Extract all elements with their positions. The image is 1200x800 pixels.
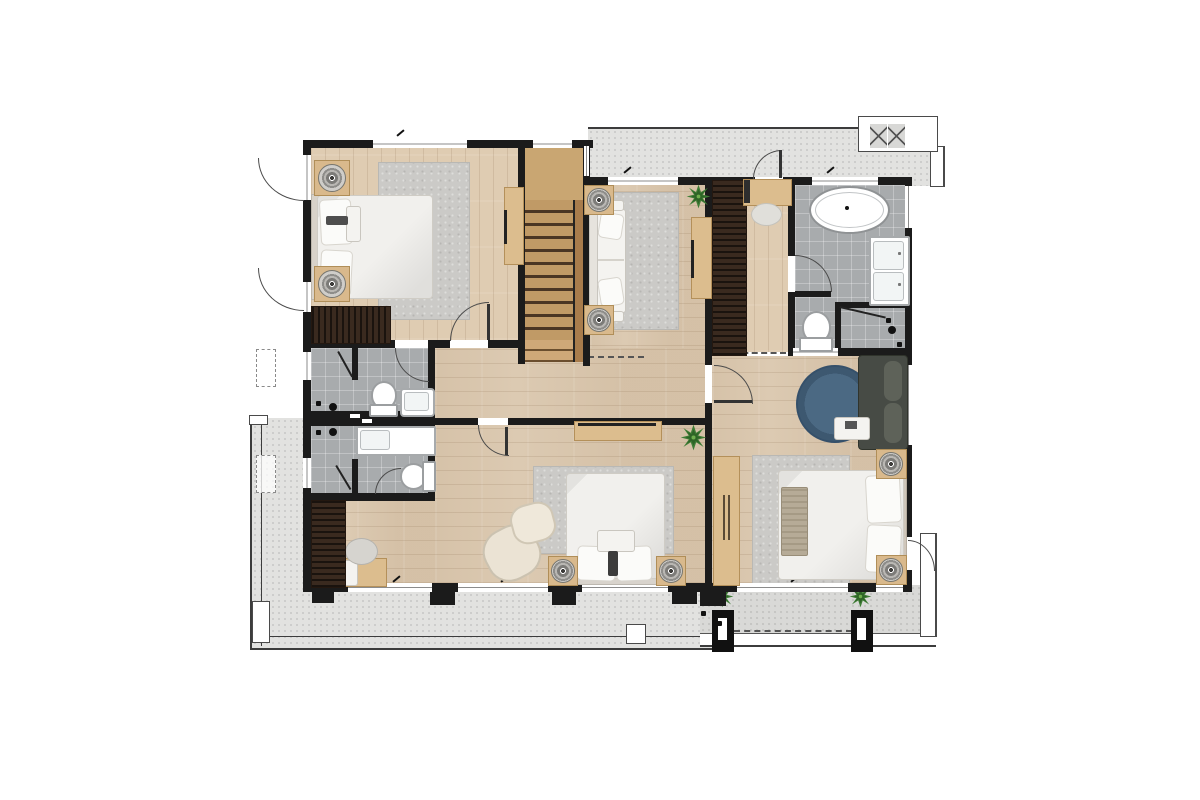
pilaster bbox=[552, 590, 576, 605]
terrace-column-outline-left bbox=[252, 601, 270, 643]
bath-window bbox=[303, 458, 311, 488]
tv-icon bbox=[504, 210, 507, 244]
tv-icon bbox=[578, 423, 656, 426]
shower-drain bbox=[316, 401, 321, 406]
bedroom-lower-door-opening bbox=[478, 418, 508, 425]
bedroom-upper-door-opening bbox=[450, 340, 488, 348]
door-leaf bbox=[505, 427, 508, 455]
tv-icon bbox=[691, 240, 694, 278]
casement-window bbox=[303, 155, 311, 200]
pilaster bbox=[312, 590, 334, 603]
toilet-tank bbox=[422, 461, 436, 492]
closet-wardrobe bbox=[712, 180, 747, 356]
shower-drain bbox=[316, 430, 321, 435]
ac-unit-outline bbox=[256, 349, 276, 387]
shower-wall bbox=[835, 302, 841, 352]
shaft-vent-slot bbox=[362, 419, 372, 423]
casement-swing-arc bbox=[258, 158, 304, 201]
window bbox=[737, 583, 848, 592]
potted-plant-icon bbox=[680, 424, 707, 451]
toilet-tank bbox=[369, 404, 398, 417]
wardrobe bbox=[713, 456, 740, 586]
door-leaf bbox=[714, 400, 752, 403]
door-leaf bbox=[487, 304, 490, 340]
laptop bbox=[608, 551, 618, 576]
table-lamp-icon bbox=[318, 164, 346, 192]
ensuite-upper-door-opening bbox=[395, 340, 428, 348]
lower-balcony-railing bbox=[700, 633, 936, 647]
casement-window bbox=[303, 282, 311, 312]
freestanding-bathtub bbox=[809, 186, 890, 234]
faucet-dot bbox=[898, 252, 901, 255]
terrace-column-outline-bottom bbox=[626, 624, 646, 644]
master-bedroom-door-opening bbox=[705, 365, 712, 403]
balcony-floor-drain bbox=[701, 611, 706, 616]
door-leaf bbox=[779, 150, 782, 178]
bath-window bbox=[303, 352, 311, 380]
stair-direction-dashes bbox=[588, 356, 644, 358]
upper-balcony-right-railing bbox=[930, 146, 945, 187]
stair-landing bbox=[525, 148, 583, 202]
faucet-dot bbox=[898, 283, 901, 286]
shower-head-icon bbox=[329, 403, 337, 411]
shower-partition bbox=[352, 459, 358, 496]
table-lamp-icon bbox=[551, 559, 575, 583]
window bbox=[533, 140, 572, 148]
dark-sofa-cushion bbox=[884, 361, 902, 401]
bed-throw bbox=[326, 216, 348, 225]
wardrobe-handle bbox=[723, 495, 725, 540]
casement-swing-arc bbox=[258, 268, 304, 311]
bed-tray bbox=[597, 530, 635, 552]
balcony-floor-drain bbox=[717, 621, 722, 626]
sofa-pillow bbox=[597, 276, 625, 307]
wall bbox=[430, 418, 712, 425]
shower-head-icon bbox=[888, 326, 896, 334]
coffee-table-books bbox=[845, 421, 857, 429]
shower-partition bbox=[352, 343, 358, 380]
vanity-desk bbox=[743, 179, 792, 206]
shower-head-icon bbox=[329, 428, 337, 436]
potted-plant-icon bbox=[686, 184, 711, 209]
vanity-basin bbox=[873, 241, 904, 270]
dark-sofa-cushion bbox=[884, 403, 902, 443]
wardrobe-handle bbox=[728, 495, 730, 540]
pilaster bbox=[430, 590, 455, 605]
window bbox=[812, 177, 878, 185]
window bbox=[584, 146, 589, 176]
ac-unit-outline bbox=[256, 455, 276, 493]
window-tick bbox=[396, 129, 404, 136]
sink-basin bbox=[360, 430, 390, 450]
wardrobe bbox=[311, 500, 346, 588]
bed-runner bbox=[781, 487, 808, 556]
louver-platform-hatch bbox=[888, 124, 905, 148]
table-lamp-icon bbox=[587, 308, 611, 332]
vanity-mirror bbox=[744, 180, 750, 203]
shaft-vent-slot bbox=[350, 414, 360, 418]
table-lamp-icon bbox=[659, 559, 683, 583]
lower-balcony-dashed-edge bbox=[734, 630, 852, 632]
sink-basin bbox=[404, 392, 429, 411]
floor-plan bbox=[0, 0, 1200, 800]
tv-console bbox=[504, 187, 524, 265]
balcony-column-right-core bbox=[857, 618, 866, 640]
pilaster bbox=[700, 590, 726, 606]
shower-drain bbox=[886, 318, 891, 323]
vanity-basin bbox=[873, 272, 904, 301]
shower-drain bbox=[897, 342, 902, 347]
window bbox=[373, 140, 467, 148]
terrace-railing-end-cap bbox=[249, 415, 268, 425]
master-bath-door-opening bbox=[788, 256, 795, 292]
slatted-dresser bbox=[311, 306, 391, 344]
window bbox=[905, 186, 912, 228]
tv-console bbox=[691, 217, 712, 299]
pilaster bbox=[672, 590, 697, 604]
table-lamp-icon bbox=[318, 270, 346, 298]
bed-tray bbox=[346, 206, 361, 242]
table-lamp-icon bbox=[587, 188, 611, 212]
desk-chair bbox=[345, 538, 378, 565]
toilet-tank bbox=[799, 337, 833, 352]
bed-pillow bbox=[865, 474, 902, 524]
sofa-pillow bbox=[597, 211, 625, 240]
vanity-stool bbox=[751, 203, 782, 226]
window bbox=[458, 583, 548, 592]
tub-drain bbox=[845, 206, 849, 210]
table-lamp-icon bbox=[879, 558, 903, 582]
window bbox=[608, 177, 678, 185]
table-lamp-icon bbox=[879, 452, 903, 476]
louver-platform-hatch bbox=[870, 124, 887, 148]
sofa-cushion-divider bbox=[598, 259, 624, 261]
